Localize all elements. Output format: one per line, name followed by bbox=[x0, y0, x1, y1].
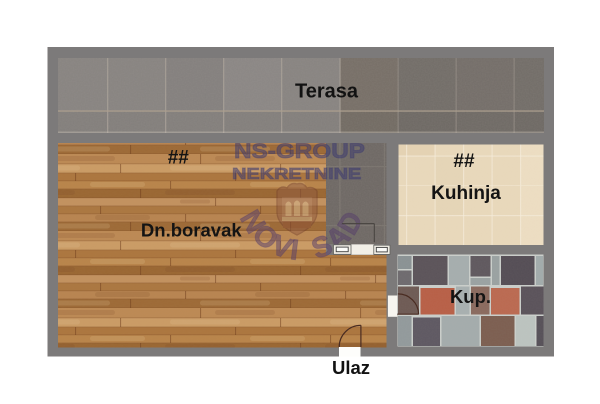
svg-text:Kuhinja: Kuhinja bbox=[431, 183, 501, 204]
svg-text:NS-GROUP: NS-GROUP bbox=[234, 140, 365, 163]
svg-text:NEKRETNINE: NEKRETNINE bbox=[232, 166, 361, 183]
svg-text:##: ## bbox=[453, 151, 475, 172]
svg-text:Ulaz: Ulaz bbox=[332, 357, 370, 378]
svg-text:Kup.: Kup. bbox=[450, 286, 491, 307]
svg-text:Terasa: Terasa bbox=[295, 81, 359, 103]
svg-text:##: ## bbox=[168, 148, 190, 169]
svg-text:Dn.boravak: Dn.boravak bbox=[141, 220, 242, 241]
